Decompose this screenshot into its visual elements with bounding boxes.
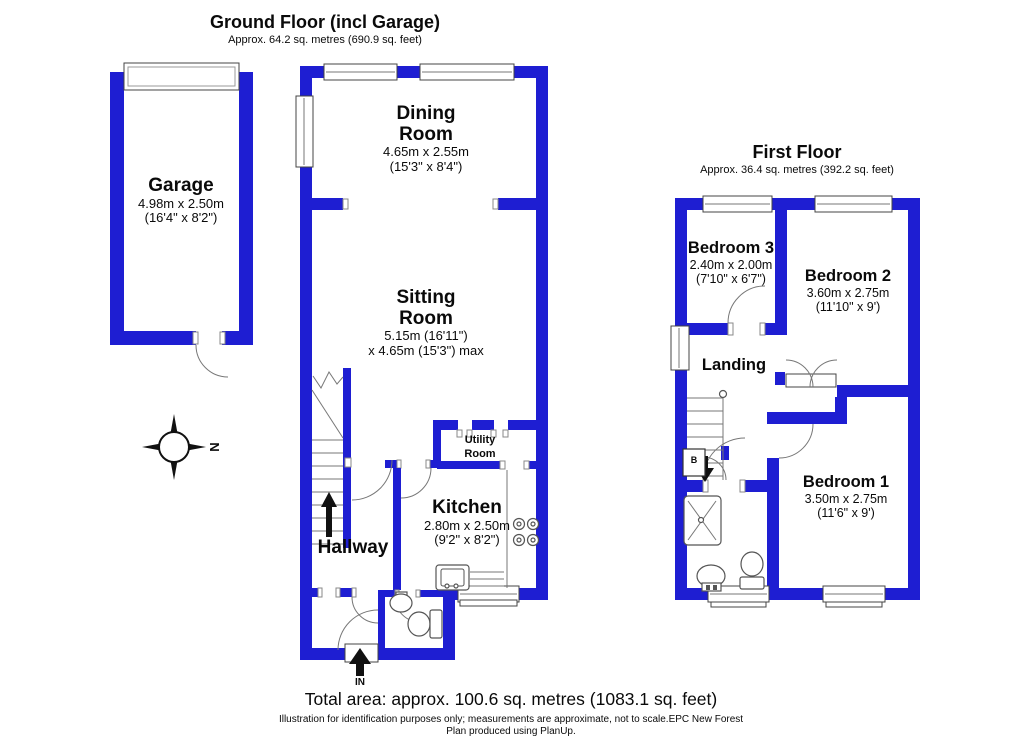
floorplan-drawing — [0, 0, 1024, 744]
utility-room-label: Utility Room — [464, 434, 495, 462]
garage-entry-door-arc — [193, 332, 228, 377]
bathroom-basin-icon — [697, 565, 725, 591]
wc-toilet-icon — [408, 610, 442, 638]
bathroom-toilet-icon — [740, 552, 764, 589]
bedroom2-label: Bedroom 2 3.60m x 2.75m (11'10" x 9') — [805, 268, 891, 315]
ground-floor-title: Ground Floor (incl Garage) Approx. 64.2 … — [210, 13, 440, 47]
hallway-label: Hallway — [318, 538, 389, 559]
disclaimer-text: Illustration for identification purposes… — [279, 714, 743, 738]
bedroom3-label: Bedroom 3 2.40m x 2.00m (7'10" x 6'7") — [688, 240, 774, 287]
hob-icon — [514, 519, 539, 546]
sitting-room-label: Sitting Room 5.15m (16'11") x 4.65m (15'… — [368, 288, 483, 359]
shower-icon — [684, 496, 721, 545]
boiler-label: B — [691, 456, 698, 466]
compass-icon — [142, 414, 206, 480]
bedroom1-label: Bedroom 1 3.50m x 2.75m (11'6" x 9') — [803, 474, 889, 521]
kitchen-sink-icon — [436, 565, 504, 590]
dining-room-label: Dining Room 4.65m x 2.55m (15'3" x 8'4") — [383, 104, 469, 175]
garage-door-icon — [124, 63, 239, 90]
entry-in-label: IN — [355, 678, 365, 689]
compass-north-label: N — [209, 440, 218, 454]
first-floor-title: First Floor Approx. 36.4 sq. metres (392… — [700, 143, 894, 177]
total-area-label: Total area: approx. 100.6 sq. metres (10… — [305, 690, 717, 709]
kitchen-label: Kitchen 2.80m x 2.50m (9'2" x 8'2") — [424, 498, 510, 548]
landing-label: Landing — [702, 357, 766, 375]
floorplan-page: Ground Floor (incl Garage) Approx. 64.2 … — [0, 0, 1024, 744]
garage-label: Garage 4.98m x 2.50m (16'4" x 8'2") — [138, 176, 224, 226]
stairs-up-arrow — [321, 492, 337, 537]
